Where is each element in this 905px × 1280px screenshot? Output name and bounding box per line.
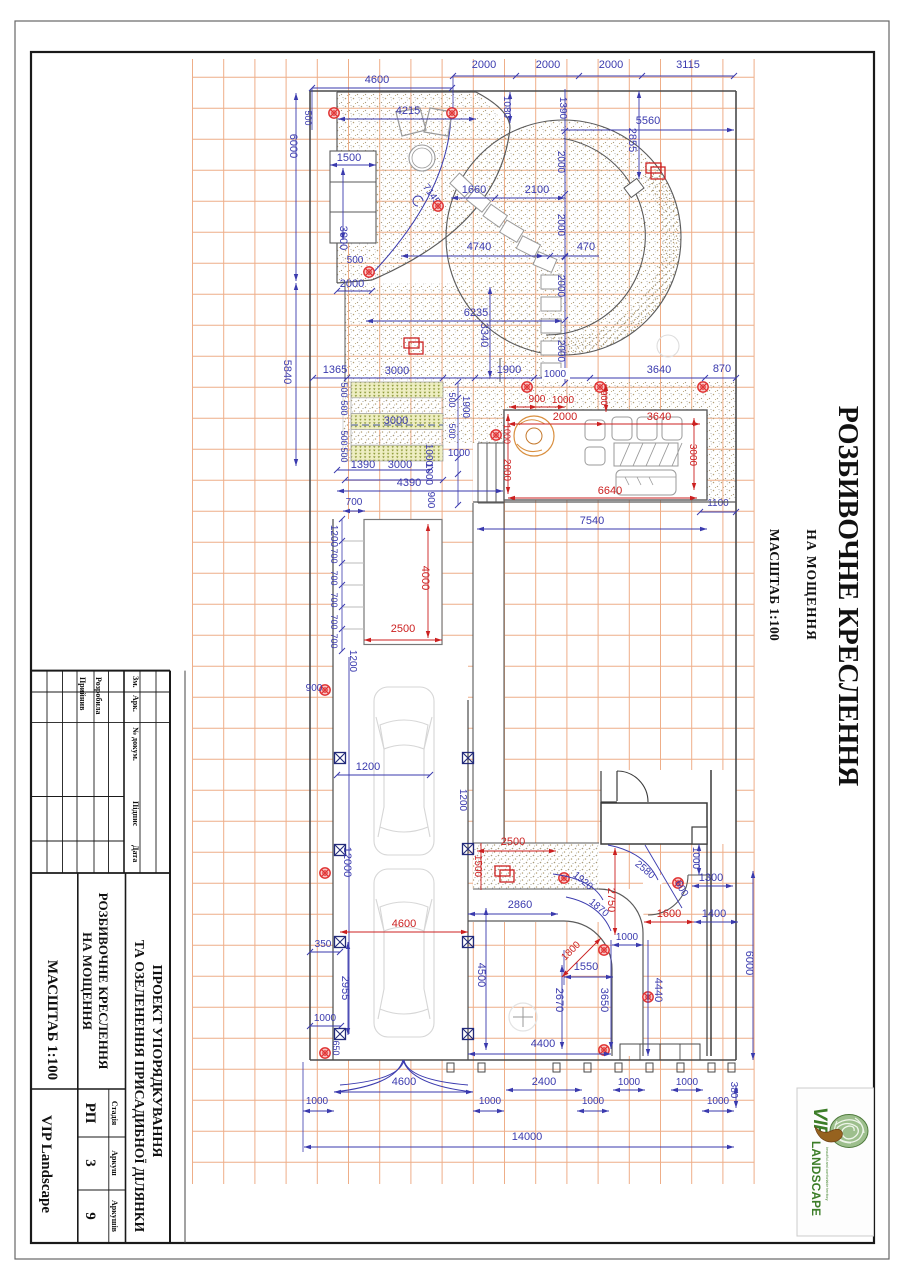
svg-text:2000: 2000 bbox=[599, 59, 623, 71]
svg-text:4215: 4215 bbox=[396, 105, 420, 117]
svg-text:Розробила: Розробила bbox=[94, 677, 103, 714]
svg-text:900: 900 bbox=[306, 683, 323, 694]
svg-text:500: 500 bbox=[347, 255, 364, 266]
svg-text:2500: 2500 bbox=[501, 836, 525, 848]
svg-text:2670: 2670 bbox=[553, 988, 565, 1012]
svg-text:700: 700 bbox=[329, 633, 339, 648]
svg-text:1900: 1900 bbox=[497, 364, 521, 376]
svg-text:ПРОЕКТ УПОРЯДКУВАННЯ: ПРОЕКТ УПОРЯДКУВАННЯ bbox=[149, 965, 164, 1158]
svg-text:7540: 7540 bbox=[580, 515, 604, 527]
svg-text:1390: 1390 bbox=[351, 459, 375, 471]
svg-text:НА МОЩЕННЯ: НА МОЩЕННЯ bbox=[80, 932, 95, 1030]
svg-text:3115: 3115 bbox=[676, 59, 700, 71]
svg-text:3000: 3000 bbox=[384, 415, 408, 427]
svg-text:Прийнив: Прийнив bbox=[78, 677, 87, 711]
svg-text:500: 500 bbox=[339, 430, 349, 445]
svg-text:1080: 1080 bbox=[501, 96, 512, 119]
svg-text:1200: 1200 bbox=[328, 525, 339, 548]
svg-text:870: 870 bbox=[713, 363, 731, 375]
svg-text:6000: 6000 bbox=[287, 134, 299, 158]
svg-text:Підпис: Підпис bbox=[131, 801, 140, 827]
svg-text:Зм.: Зм. bbox=[131, 676, 140, 688]
svg-text:1200: 1200 bbox=[347, 650, 358, 673]
svg-text:МАСШТАБ 1:100: МАСШТАБ 1:100 bbox=[44, 960, 60, 1080]
svg-text:3640: 3640 bbox=[647, 411, 671, 423]
svg-text:2955: 2955 bbox=[339, 976, 351, 1000]
svg-text:1365: 1365 bbox=[323, 364, 347, 376]
svg-text:1390: 1390 bbox=[557, 97, 568, 120]
svg-text:900: 900 bbox=[529, 394, 546, 405]
svg-text:РОЗБИВОЧНЕ КРЕСЛЕННЯ: РОЗБИВОЧНЕ КРЕСЛЕННЯ bbox=[96, 893, 111, 1070]
svg-text:500: 500 bbox=[303, 110, 313, 125]
svg-text:4500: 4500 bbox=[475, 963, 487, 987]
svg-text:2000: 2000 bbox=[555, 214, 566, 237]
svg-text:4400: 4400 bbox=[531, 1038, 555, 1050]
svg-text:1600: 1600 bbox=[657, 908, 681, 920]
svg-text:4600: 4600 bbox=[365, 74, 389, 86]
svg-text:3340: 3340 bbox=[478, 323, 490, 347]
svg-text:2855: 2855 bbox=[626, 128, 638, 152]
svg-text:МАСШТАБ 1:100: МАСШТАБ 1:100 bbox=[767, 529, 782, 641]
svg-text:500: 500 bbox=[339, 400, 349, 415]
svg-text:1000: 1000 bbox=[502, 424, 512, 444]
svg-text:470: 470 bbox=[577, 241, 595, 253]
svg-text:1660: 1660 bbox=[462, 184, 486, 196]
svg-text:2000: 2000 bbox=[555, 151, 566, 174]
svg-text:РОЗБИВОЧНЕ КРЕСЛЕННЯ: РОЗБИВОЧНЕ КРЕСЛЕННЯ bbox=[832, 406, 863, 786]
svg-text:1400: 1400 bbox=[702, 908, 726, 920]
svg-text:700: 700 bbox=[329, 548, 339, 563]
svg-text:Аркуш: Аркуш bbox=[110, 1150, 119, 1176]
svg-text:500: 500 bbox=[339, 382, 349, 397]
svg-text:2000: 2000 bbox=[553, 411, 577, 423]
svg-text:900: 900 bbox=[425, 492, 436, 509]
svg-text:2000: 2000 bbox=[536, 59, 560, 71]
svg-text:1000: 1000 bbox=[690, 847, 701, 870]
svg-text:1000: 1000 bbox=[306, 1096, 329, 1107]
svg-text:500: 500 bbox=[447, 423, 457, 438]
svg-text:2400: 2400 bbox=[532, 1076, 556, 1088]
svg-text:4740: 4740 bbox=[467, 241, 491, 253]
svg-text:Стадія: Стадія bbox=[110, 1101, 119, 1126]
svg-text:РП: РП bbox=[82, 1103, 98, 1124]
svg-text:500: 500 bbox=[447, 392, 457, 407]
svg-text:3650: 3650 bbox=[598, 988, 610, 1012]
svg-text:2000: 2000 bbox=[472, 59, 496, 71]
svg-text:1200: 1200 bbox=[457, 789, 468, 812]
svg-text:1000: 1000 bbox=[582, 1096, 605, 1107]
svg-text:2500: 2500 bbox=[391, 623, 415, 635]
svg-text:1000: 1000 bbox=[618, 1077, 641, 1088]
svg-text:1000: 1000 bbox=[423, 463, 434, 486]
svg-text:2000: 2000 bbox=[555, 275, 566, 298]
svg-text:1000: 1000 bbox=[552, 395, 575, 406]
svg-text:Дата: Дата bbox=[131, 845, 140, 862]
svg-text:6640: 6640 bbox=[598, 485, 622, 497]
svg-text:1000: 1000 bbox=[479, 1096, 502, 1107]
svg-text:380: 380 bbox=[728, 1082, 739, 1099]
svg-text:1000: 1000 bbox=[616, 932, 639, 943]
svg-text:1200: 1200 bbox=[356, 761, 380, 773]
svg-text:2000: 2000 bbox=[340, 278, 364, 290]
svg-text:3000: 3000 bbox=[385, 365, 409, 377]
svg-text:6000: 6000 bbox=[743, 951, 755, 975]
svg-text:4600: 4600 bbox=[392, 918, 416, 930]
svg-text:14000: 14000 bbox=[512, 1131, 543, 1143]
svg-text:4390: 4390 bbox=[397, 477, 421, 489]
svg-text:LANDSCAPE: LANDSCAPE bbox=[809, 1141, 823, 1216]
svg-text:500: 500 bbox=[339, 447, 349, 462]
svg-text:900: 900 bbox=[599, 390, 609, 405]
svg-text:1500: 1500 bbox=[337, 152, 361, 164]
svg-text:1000: 1000 bbox=[544, 369, 567, 380]
svg-text:350: 350 bbox=[315, 939, 332, 950]
svg-text:1500: 1500 bbox=[472, 855, 483, 878]
svg-text:700: 700 bbox=[346, 497, 363, 508]
svg-text:1000: 1000 bbox=[448, 448, 471, 459]
svg-text:Аркушів: Аркушів bbox=[110, 1200, 119, 1233]
svg-text:1000: 1000 bbox=[676, 1077, 699, 1088]
svg-text:2000: 2000 bbox=[555, 340, 566, 363]
svg-text:4440: 4440 bbox=[652, 978, 664, 1002]
svg-text:ТА ОЗЕЛЕНЕННЯ ПРИСАДИБНОЇ ДІЛЯ: ТА ОЗЕЛЕНЕННЯ ПРИСАДИБНОЇ ДІЛЯНКИ bbox=[132, 940, 147, 1233]
svg-text:№ докум.: № докум. bbox=[131, 727, 140, 761]
svg-text:4600: 4600 bbox=[392, 1076, 416, 1088]
svg-text:3000: 3000 bbox=[687, 444, 698, 467]
svg-text:700: 700 bbox=[329, 614, 339, 629]
svg-text:1550: 1550 bbox=[574, 961, 598, 973]
svg-text:6235: 6235 bbox=[464, 307, 488, 319]
svg-text:3640: 3640 bbox=[647, 364, 671, 376]
svg-text:1000: 1000 bbox=[707, 1096, 730, 1107]
svg-text:3000: 3000 bbox=[388, 459, 412, 471]
svg-text:2000: 2000 bbox=[501, 459, 512, 482]
svg-text:1900: 1900 bbox=[460, 396, 471, 419]
svg-text:VIP Landscape: VIP Landscape bbox=[38, 1115, 54, 1213]
svg-text:2860: 2860 bbox=[508, 899, 532, 911]
svg-text:700: 700 bbox=[329, 592, 339, 607]
svg-text:Арк.: Арк. bbox=[131, 695, 140, 712]
svg-text:2100: 2100 bbox=[525, 184, 549, 196]
svg-text:5560: 5560 bbox=[636, 115, 660, 127]
svg-text:650: 650 bbox=[331, 1040, 341, 1055]
svg-text:НА МОЩЕННЯ: НА МОЩЕННЯ bbox=[804, 529, 819, 640]
svg-text:5840: 5840 bbox=[281, 360, 293, 384]
svg-text:1000: 1000 bbox=[314, 1013, 337, 1024]
svg-text:9: 9 bbox=[82, 1212, 98, 1220]
svg-text:12000: 12000 bbox=[341, 847, 353, 878]
svg-text:700: 700 bbox=[329, 570, 339, 585]
svg-text:beautiful and comfortable terr: beautiful and comfortable territory bbox=[825, 1147, 829, 1201]
svg-text:4000: 4000 bbox=[419, 566, 431, 590]
svg-text:1300: 1300 bbox=[699, 872, 723, 884]
svg-text:3: 3 bbox=[82, 1159, 98, 1167]
svg-text:1100: 1100 bbox=[707, 498, 729, 509]
